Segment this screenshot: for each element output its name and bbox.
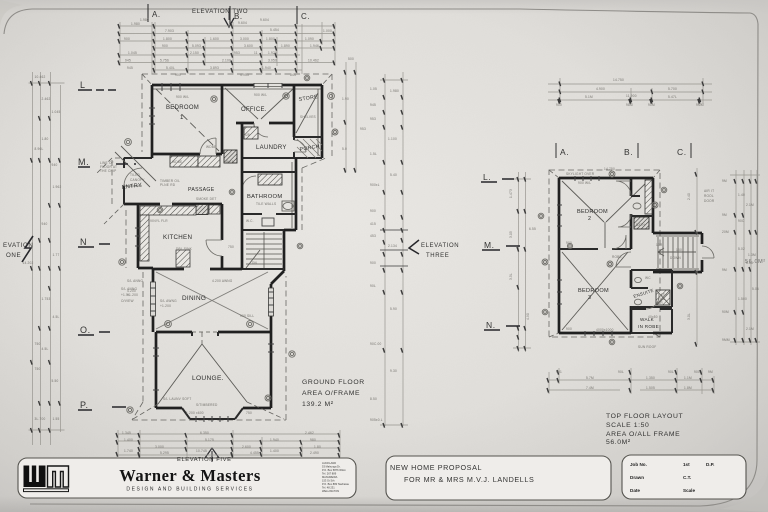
- svg-text:B.: B.: [624, 147, 633, 157]
- svg-text:OFFICE.: OFFICE.: [241, 107, 267, 113]
- svg-text:750: 750: [228, 245, 234, 249]
- svg-text:Scale: Scale: [683, 488, 695, 493]
- svg-text:8.50: 8.50: [370, 397, 377, 401]
- svg-text:CANOPY: CANOPY: [130, 178, 145, 182]
- svg-text:90L: 90L: [618, 370, 624, 374]
- svg-text:5.7M: 5.7M: [586, 376, 594, 380]
- svg-text:L.: L.: [483, 172, 491, 182]
- svg-text:3.0L: 3.0L: [687, 313, 691, 320]
- svg-text:1.1M: 1.1M: [684, 376, 692, 380]
- svg-text:3.050: 3.050: [268, 59, 277, 63]
- svg-text:9M: 9M: [708, 370, 713, 374]
- svg-text:WDBE: WDBE: [172, 160, 182, 164]
- svg-text:90C.00: 90C.00: [370, 342, 382, 346]
- svg-text:2: 2: [588, 216, 591, 222]
- svg-text:BEDROOM: BEDROOM: [166, 105, 199, 111]
- svg-text:S/L ANNG: S/L ANNG: [127, 279, 144, 283]
- svg-text:14.750: 14.750: [613, 78, 624, 82]
- svg-text:2.134: 2.134: [388, 244, 397, 248]
- svg-text:BEDROOM: BEDROOM: [578, 288, 609, 294]
- svg-text:11.900: 11.900: [626, 94, 637, 98]
- svg-text:1.100: 1.100: [388, 137, 397, 141]
- svg-text:900: 900: [694, 370, 700, 374]
- svg-text:1.980: 1.980: [131, 22, 140, 26]
- svg-text:90C: 90C: [738, 219, 745, 223]
- svg-text:945: 945: [370, 103, 376, 107]
- svg-text:WDBE: WDBE: [206, 145, 216, 149]
- svg-text:10.462: 10.462: [35, 75, 46, 79]
- svg-text:AREA O/FRAME: AREA O/FRAME: [302, 390, 360, 397]
- svg-text:Warner & Masters: Warner & Masters: [119, 466, 261, 485]
- svg-text:P.: P.: [80, 400, 89, 410]
- svg-text:9.604: 9.604: [260, 18, 269, 22]
- svg-text:7.903: 7.903: [165, 29, 174, 33]
- svg-text:1.800: 1.800: [163, 37, 172, 41]
- svg-text:3L.700: 3L.700: [35, 417, 46, 421]
- svg-text:ELEVATION: ELEVATION: [421, 243, 459, 249]
- svg-text:ROOL: ROOL: [704, 194, 714, 198]
- svg-text:2.600: 2.600: [242, 445, 251, 449]
- svg-text:C.: C.: [301, 12, 310, 21]
- svg-text:N: N: [80, 237, 87, 247]
- svg-text:1.600: 1.600: [210, 37, 219, 41]
- svg-text:901: 901: [556, 370, 562, 374]
- svg-text:6.350: 6.350: [200, 431, 209, 435]
- svg-text:90L: 90L: [668, 370, 674, 374]
- svg-text:1.800: 1.800: [266, 37, 275, 41]
- svg-text:5.02: 5.02: [738, 247, 745, 251]
- svg-text:L: L: [80, 80, 86, 90]
- svg-text:N.: N.: [486, 320, 496, 330]
- svg-text:1.8M: 1.8M: [684, 386, 692, 390]
- svg-text:DOOR: DOOR: [704, 199, 715, 203]
- svg-text:1.3M: 1.3M: [748, 253, 756, 257]
- svg-text:Tel. 267 889: Tel. 267 889: [322, 472, 337, 476]
- svg-text:DOWN: DOWN: [670, 256, 681, 260]
- svg-text:5.06: 5.06: [752, 287, 759, 291]
- svg-text:2.40: 2.40: [687, 193, 691, 200]
- svg-text:953: 953: [370, 117, 376, 121]
- svg-text:750: 750: [35, 342, 41, 346]
- svg-text:1.05: 1.05: [370, 87, 377, 91]
- svg-text:1.980: 1.980: [140, 18, 149, 22]
- svg-text:BATH: BATH: [636, 223, 646, 227]
- svg-text:900: 900: [370, 209, 376, 213]
- svg-text:1.740: 1.740: [124, 449, 133, 453]
- svg-text:2.1M: 2.1M: [746, 203, 754, 207]
- svg-text:5.40L: 5.40L: [166, 66, 175, 70]
- svg-text:BEDROOM: BEDROOM: [577, 209, 608, 215]
- svg-text:940: 940: [42, 222, 48, 226]
- svg-text:5.90: 5.90: [390, 307, 397, 311]
- svg-text:S/L AWNG: S/L AWNG: [160, 299, 177, 303]
- svg-text:ELEVATION TWO: ELEVATION TWO: [192, 9, 248, 15]
- svg-text:1.753: 1.753: [42, 297, 51, 301]
- svg-text:1.80: 1.80: [314, 445, 321, 449]
- svg-text:1: 1: [180, 115, 184, 121]
- svg-text:40x50: 40x50: [648, 315, 658, 319]
- svg-text:O.: O.: [80, 325, 91, 335]
- svg-text:453: 453: [370, 234, 376, 238]
- svg-text:SKYLIGHT OVER: SKYLIGHT OVER: [566, 172, 595, 176]
- svg-text:9M: 9M: [722, 179, 727, 183]
- svg-text:3.600: 3.600: [244, 44, 253, 48]
- svg-text:5.06: 5.06: [746, 261, 753, 265]
- svg-text:WC: WC: [645, 276, 651, 280]
- svg-text:AUCKLAND: AUCKLAND: [322, 461, 336, 465]
- svg-text:1.350: 1.350: [646, 376, 655, 380]
- svg-text:1.55: 1.55: [53, 417, 60, 421]
- svg-text:SMOKE DET: SMOKE DET: [196, 197, 217, 201]
- svg-text:TOP FLOOR LAYOUT: TOP FLOOR LAYOUT: [606, 413, 683, 420]
- svg-text:7.4M: 7.4M: [586, 386, 594, 390]
- svg-text:900xL: 900xL: [370, 183, 380, 187]
- svg-text:2.150: 2.150: [190, 51, 199, 55]
- svg-text:1.5L: 1.5L: [370, 152, 377, 156]
- svg-text:LINEN: LINEN: [224, 160, 235, 164]
- svg-text:20M: 20M: [722, 230, 729, 234]
- svg-text:1.400: 1.400: [124, 438, 133, 442]
- svg-text:D.P.: D.P.: [706, 462, 714, 467]
- svg-text:5.50: 5.50: [52, 379, 59, 383]
- svg-text:4.455: 4.455: [250, 451, 259, 455]
- svg-text:5.093: 5.093: [192, 44, 201, 48]
- svg-text:3.000: 3.000: [155, 445, 164, 449]
- svg-text:2.1M: 2.1M: [746, 327, 754, 331]
- svg-text:DINING: DINING: [182, 295, 206, 302]
- svg-text:750: 750: [246, 411, 252, 415]
- svg-text:TILE WALLS: TILE WALLS: [256, 202, 276, 206]
- svg-text:TUB: TUB: [243, 133, 250, 137]
- svg-text:9.604: 9.604: [238, 21, 247, 25]
- svg-text:56.0M²: 56.0M²: [606, 439, 631, 446]
- svg-text:900: 900: [566, 241, 572, 245]
- svg-text:1.500: 1.500: [738, 297, 747, 301]
- svg-text:1.962: 1.962: [53, 185, 62, 189]
- svg-text:1.505: 1.505: [646, 386, 655, 390]
- svg-text:5.175: 5.175: [205, 438, 214, 442]
- svg-text:5.0: 5.0: [342, 147, 347, 151]
- svg-text:FOR MR & MRS M.V.J. LANDELL: FOR MR & MRS M.V.J. LANDELLS: [404, 475, 534, 484]
- svg-text:1.045: 1.045: [128, 51, 137, 55]
- svg-text:5.40: 5.40: [390, 173, 397, 177]
- svg-text:9.30: 9.30: [390, 369, 397, 373]
- svg-text:1.940: 1.940: [262, 66, 271, 70]
- svg-text:LOUNGE.: LOUNGE.: [192, 375, 224, 382]
- svg-text:900: 900: [175, 73, 181, 77]
- svg-text:VINYL FLR: VINYL FLR: [150, 219, 168, 223]
- svg-text:53 Mahunga Dr.: 53 Mahunga Dr.: [322, 465, 341, 469]
- svg-text:750: 750: [35, 367, 41, 371]
- svg-text:5.1M: 5.1M: [585, 95, 593, 99]
- svg-text:2.100: 2.100: [222, 59, 231, 63]
- svg-text:1.920: 1.920: [268, 51, 277, 55]
- svg-text:940: 940: [52, 163, 58, 167]
- svg-text:3.5L: 3.5L: [509, 273, 513, 280]
- svg-text:953: 953: [360, 127, 366, 131]
- svg-text:AREA O/ALL FRAME: AREA O/ALL FRAME: [606, 431, 680, 438]
- svg-text:1.80: 1.80: [42, 137, 49, 141]
- svg-text:ONE: ONE: [6, 252, 21, 259]
- svg-text:O/VIEW: O/VIEW: [121, 299, 134, 303]
- svg-text:BATHROOM: BATHROOM: [247, 194, 282, 200]
- svg-text:TILED: TILED: [130, 173, 141, 177]
- svg-text:NEW HOME PROPOSAL: NEW HOME PROPOSAL: [390, 463, 482, 472]
- svg-text:A.: A.: [152, 10, 161, 19]
- svg-text:1.000: 1.000: [323, 29, 332, 33]
- svg-text:11: 11: [254, 51, 258, 55]
- svg-text:W.C.: W.C.: [246, 219, 254, 223]
- svg-text:153 Gt Sth: 153 Gt Sth: [322, 479, 335, 483]
- svg-text:C.T.: C.T.: [683, 475, 691, 480]
- svg-text:C.: C.: [677, 147, 687, 157]
- svg-text:4.900: 4.900: [596, 87, 605, 91]
- svg-text:THE CHIP: THE CHIP: [100, 169, 116, 173]
- svg-text:5.295: 5.295: [160, 451, 169, 455]
- svg-text:6.55: 6.55: [529, 227, 536, 231]
- svg-text:1.940: 1.940: [270, 438, 279, 442]
- svg-text:A.: A.: [560, 147, 569, 157]
- svg-text:953: 953: [234, 51, 240, 55]
- svg-text:900 W/L: 900 W/L: [578, 181, 591, 185]
- svg-text:4000x1000: 4000x1000: [596, 328, 614, 332]
- svg-text:900 W/L: 900 W/L: [176, 95, 189, 99]
- svg-text:AIR IT: AIR IT: [704, 189, 714, 193]
- svg-text:BR: BR: [658, 301, 663, 305]
- svg-text:945: 945: [125, 59, 131, 63]
- svg-text:4.5L: 4.5L: [42, 347, 49, 351]
- svg-text:M.: M.: [484, 240, 495, 250]
- svg-text:90M: 90M: [722, 310, 729, 314]
- svg-text:1.946: 1.946: [310, 44, 319, 48]
- svg-text:1.890: 1.890: [281, 44, 290, 48]
- svg-text:1.90: 1.90: [342, 97, 349, 101]
- svg-text:900 W/L: 900 W/L: [254, 93, 267, 97]
- svg-text:1.045: 1.045: [52, 110, 61, 114]
- svg-text:9M: 9M: [722, 268, 727, 272]
- svg-text:9MM: 9MM: [696, 103, 704, 107]
- svg-text:14.750: 14.750: [604, 167, 615, 171]
- svg-text:1.090: 1.090: [305, 37, 314, 41]
- svg-text:KITCHEN: KITCHEN: [163, 234, 192, 241]
- svg-text:Drawn: Drawn: [630, 475, 644, 480]
- svg-text:4.200 AWNG: 4.200 AWNG: [212, 279, 233, 283]
- svg-text:ELEVATION FIVE: ELEVATION FIVE: [177, 457, 232, 463]
- svg-text:900: 900: [162, 44, 168, 48]
- svg-text:500: 500: [348, 57, 354, 61]
- svg-text:14.202: 14.202: [23, 261, 34, 265]
- svg-text:PASSAGE: PASSAGE: [188, 187, 215, 193]
- svg-text:1.473: 1.473: [509, 189, 513, 198]
- svg-text:P.O. Box 5876 Wlstn: P.O. Box 5876 Wlstn: [322, 468, 346, 472]
- svg-text:PLNE RD: PLNE RD: [160, 183, 176, 187]
- svg-text:WELLINGTON: WELLINGTON: [322, 489, 339, 493]
- svg-text:5.454: 5.454: [270, 28, 279, 32]
- svg-text:ROBE: ROBE: [612, 255, 622, 259]
- svg-text:3.05: 3.05: [509, 231, 513, 238]
- svg-text:MANUREWA: MANUREWA: [322, 475, 338, 479]
- svg-text:900: 900: [124, 37, 130, 41]
- svg-text:S/L ANNG: S/L ANNG: [121, 287, 138, 291]
- svg-text:150: 150: [676, 248, 682, 252]
- svg-text:139.2 M²: 139.2 M²: [302, 401, 334, 408]
- svg-text:IN ROBE: IN ROBE: [638, 324, 659, 329]
- svg-text:DN: DN: [252, 261, 258, 265]
- svg-text:980: 980: [310, 438, 316, 442]
- svg-text:16R: 16R: [656, 243, 663, 247]
- svg-text:3.893: 3.893: [210, 66, 219, 70]
- svg-text:905x0.L: 905x0.L: [370, 418, 383, 422]
- svg-text:1.345: 1.345: [122, 431, 131, 435]
- svg-text:1.980: 1.980: [390, 89, 399, 93]
- svg-text:9MM: 9MM: [722, 338, 730, 342]
- svg-text:DESIGN AND BUILDING SERVICES: DESIGN AND BUILDING SERVICES: [126, 487, 253, 493]
- svg-text:4.90: 4.90: [526, 313, 530, 320]
- svg-text:8.96L: 8.96L: [35, 147, 44, 151]
- svg-text:844: 844: [290, 73, 296, 77]
- svg-text:GROUND FLOOR: GROUND FLOOR: [302, 379, 365, 386]
- svg-text:900 SILL: 900 SILL: [240, 314, 254, 318]
- svg-text:SCALE 1:50: SCALE 1:50: [606, 422, 649, 429]
- svg-text:5.47L: 5.47L: [668, 95, 677, 99]
- svg-text:10.745: 10.745: [196, 449, 207, 453]
- svg-text:4.953: 4.953: [240, 73, 249, 77]
- svg-text:LAUNDRY: LAUNDRY: [256, 145, 287, 151]
- svg-text:90M: 90M: [648, 103, 655, 107]
- svg-text:M.: M.: [78, 157, 89, 167]
- svg-text:2.462: 2.462: [42, 97, 51, 101]
- svg-text:2.462: 2.462: [305, 431, 314, 435]
- svg-text:THREE: THREE: [426, 253, 449, 259]
- svg-text:5.700: 5.700: [668, 87, 677, 91]
- svg-text:1.200 x600: 1.200 x600: [186, 411, 204, 415]
- svg-text:900: 900: [566, 327, 572, 331]
- svg-text:S/L LAUNV SOFT: S/L LAUNV SOFT: [163, 397, 191, 401]
- svg-text:1st: 1st: [683, 462, 690, 467]
- svg-text:SUN ROOF: SUN ROOF: [638, 345, 656, 349]
- svg-text:Date: Date: [630, 488, 640, 493]
- svg-text:1.400: 1.400: [270, 449, 279, 453]
- svg-text:415: 415: [370, 222, 376, 226]
- svg-text:90L: 90L: [370, 284, 376, 288]
- svg-text:SHELVES: SHELVES: [300, 115, 316, 119]
- svg-text:4.5L: 4.5L: [53, 315, 60, 319]
- svg-text:1.77: 1.77: [53, 253, 60, 257]
- svg-text:5.756: 5.756: [160, 59, 169, 63]
- svg-text:945: 945: [127, 66, 133, 70]
- svg-text:1.40: 1.40: [738, 193, 745, 197]
- svg-text:P.O. Box 883 Tawharau: P.O. Box 883 Tawharau: [322, 482, 350, 486]
- svg-text:3: 3: [588, 295, 591, 301]
- svg-text:Job No.: Job No.: [630, 462, 647, 467]
- svg-text:+1.200: +1.200: [160, 304, 171, 308]
- svg-text:98M: 98M: [626, 103, 633, 107]
- svg-text:10.462: 10.462: [308, 59, 319, 63]
- svg-text:900: 900: [556, 103, 562, 107]
- svg-text:+1.5L: +1.5L: [121, 293, 130, 297]
- svg-text:900: 900: [370, 261, 376, 265]
- svg-text:3.000: 3.000: [240, 37, 249, 41]
- svg-text:9M: 9M: [722, 213, 727, 217]
- svg-text:2.490: 2.490: [310, 451, 319, 455]
- svg-text:S/TIMBERED: S/TIMBERED: [196, 403, 218, 407]
- svg-text:DBL SINK: DBL SINK: [176, 247, 193, 251]
- svg-text:Tel. 48 231: Tel. 48 231: [322, 486, 335, 490]
